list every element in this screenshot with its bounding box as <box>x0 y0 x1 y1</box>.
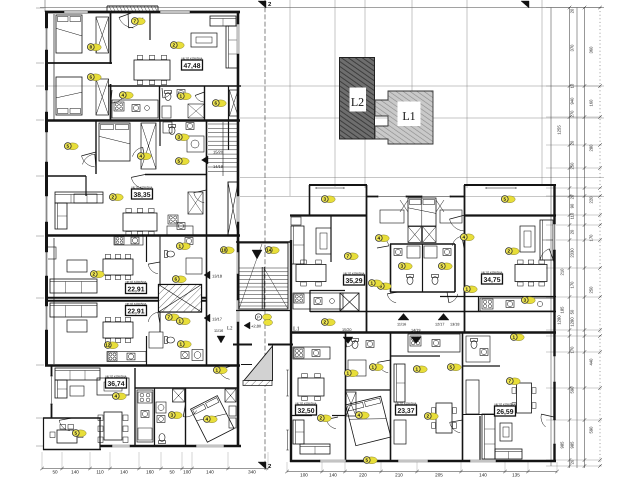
svg-text:14/19: 14/19 <box>213 164 224 169</box>
svg-text:4: 4 <box>358 413 361 418</box>
svg-text:1: 1 <box>216 368 219 373</box>
svg-text:20: 20 <box>570 229 575 234</box>
svg-text:4: 4 <box>378 236 381 241</box>
svg-text:590: 590 <box>589 426 594 434</box>
svg-text:170: 170 <box>570 281 575 289</box>
svg-text:1: 1 <box>372 365 375 370</box>
svg-text:5: 5 <box>178 159 181 164</box>
svg-text:14: 14 <box>266 248 272 253</box>
svg-text:10: 10 <box>570 83 575 88</box>
svg-text:360: 360 <box>589 46 594 54</box>
svg-text:280: 280 <box>589 144 594 152</box>
svg-text:5: 5 <box>67 144 70 149</box>
svg-text:2: 2 <box>173 43 176 48</box>
svg-text:1: 1 <box>513 335 516 340</box>
svg-text:12/17: 12/17 <box>435 323 445 327</box>
svg-text:250: 250 <box>589 286 594 294</box>
svg-text:50: 50 <box>169 469 175 474</box>
svg-text:22,91: 22,91 <box>127 286 144 293</box>
svg-text:7: 7 <box>347 254 350 259</box>
svg-text:2: 2 <box>324 320 327 325</box>
svg-text:3: 3 <box>524 298 527 303</box>
svg-text:32,50: 32,50 <box>297 408 314 415</box>
svg-text:4: 4 <box>140 154 143 159</box>
svg-text:5: 5 <box>441 264 444 269</box>
svg-text:440: 440 <box>589 358 594 366</box>
svg-text:11/16: 11/16 <box>397 323 406 327</box>
svg-text:5: 5 <box>75 431 78 436</box>
svg-text:7: 7 <box>168 315 171 320</box>
svg-text:6: 6 <box>175 277 178 282</box>
svg-text:6: 6 <box>215 101 218 106</box>
svg-text:38,35: 38,35 <box>133 192 150 199</box>
svg-text:3: 3 <box>178 135 181 140</box>
svg-text:170: 170 <box>589 234 594 242</box>
svg-text:6: 6 <box>90 75 93 80</box>
svg-text:160: 160 <box>146 469 154 474</box>
svg-text:4: 4 <box>206 417 209 422</box>
svg-text:1: 1 <box>180 342 183 347</box>
svg-text:1: 1 <box>347 371 350 376</box>
svg-text:100: 100 <box>183 469 191 474</box>
svg-text:3: 3 <box>171 413 174 418</box>
svg-text:1: 1 <box>371 281 374 286</box>
svg-text:5: 5 <box>366 458 369 463</box>
svg-text:90: 90 <box>570 203 575 208</box>
svg-text:160: 160 <box>589 99 594 107</box>
svg-text:210: 210 <box>395 472 403 477</box>
svg-text:50: 50 <box>52 469 58 474</box>
svg-text:940: 940 <box>570 97 575 105</box>
svg-text:26,59: 26,59 <box>496 409 513 416</box>
svg-text:3: 3 <box>324 197 327 202</box>
svg-text:2: 2 <box>320 416 323 421</box>
svg-text:20: 20 <box>570 8 575 13</box>
svg-text:1280: 1280 <box>570 317 575 327</box>
svg-text:L2: L2 <box>227 326 233 332</box>
svg-text:140: 140 <box>120 469 128 474</box>
svg-text:10: 10 <box>221 248 227 253</box>
svg-text:1: 1 <box>179 319 182 324</box>
svg-text:8: 8 <box>90 45 93 50</box>
svg-text:1: 1 <box>179 244 182 249</box>
svg-text:4: 4 <box>115 394 118 399</box>
svg-text:2: 2 <box>93 272 96 277</box>
svg-text:13/17: 13/17 <box>212 317 223 322</box>
svg-text:35,29: 35,29 <box>345 278 362 285</box>
svg-text:1255: 1255 <box>557 125 562 135</box>
svg-text:36,74: 36,74 <box>107 381 124 388</box>
svg-text:L1: L1 <box>402 109 415 123</box>
svg-text:140: 140 <box>479 472 487 477</box>
svg-text:13/18: 13/18 <box>450 323 460 327</box>
svg-text:4: 4 <box>463 235 466 240</box>
svg-text:20: 20 <box>570 194 575 199</box>
svg-text:50: 50 <box>570 309 575 314</box>
svg-text:14/19: 14/19 <box>411 329 421 333</box>
svg-text:210: 210 <box>560 268 565 276</box>
svg-text:+2,80: +2,80 <box>251 324 262 329</box>
svg-text:250: 250 <box>570 162 575 170</box>
svg-text:20: 20 <box>570 140 575 145</box>
svg-text:20: 20 <box>570 459 575 464</box>
svg-text:340: 340 <box>248 469 256 474</box>
svg-text:3: 3 <box>401 264 404 269</box>
svg-text:2: 2 <box>427 414 430 419</box>
svg-text:5: 5 <box>450 365 453 370</box>
svg-text:2330: 2330 <box>570 248 575 258</box>
svg-text:12: 12 <box>105 343 111 348</box>
svg-text:1: 1 <box>466 287 469 292</box>
svg-text:185: 185 <box>560 306 565 314</box>
svg-text:1: 1 <box>180 94 183 99</box>
svg-text:7: 7 <box>134 19 137 24</box>
svg-text:2: 2 <box>112 195 115 200</box>
svg-text:1280: 1280 <box>557 315 562 325</box>
svg-text:170: 170 <box>570 346 575 354</box>
svg-text:L2: L2 <box>351 95 364 109</box>
svg-text:220: 220 <box>589 196 594 204</box>
svg-text:5: 5 <box>504 197 507 202</box>
svg-text:47,48: 47,48 <box>183 63 200 70</box>
svg-text:1: 1 <box>416 367 419 372</box>
svg-text:4: 4 <box>122 93 125 98</box>
svg-text:140: 140 <box>71 469 79 474</box>
svg-text:13/18: 13/18 <box>212 274 223 279</box>
svg-text:985: 985 <box>560 441 565 449</box>
svg-text:7: 7 <box>509 379 512 384</box>
svg-text:2: 2 <box>508 249 511 254</box>
svg-text:370: 370 <box>570 44 575 52</box>
svg-text:P: P <box>257 315 260 320</box>
svg-text:110: 110 <box>96 469 104 474</box>
svg-text:590: 590 <box>570 386 575 394</box>
svg-text:220: 220 <box>359 472 367 477</box>
svg-text:135: 135 <box>512 472 520 477</box>
svg-text:270: 270 <box>570 110 575 118</box>
svg-text:11/16: 11/16 <box>214 329 223 333</box>
svg-text:34,75: 34,75 <box>483 277 500 284</box>
svg-text:15/20: 15/20 <box>213 150 224 155</box>
svg-text:100: 100 <box>300 472 308 477</box>
svg-text:15/20: 15/20 <box>342 328 352 332</box>
svg-text:205: 205 <box>435 472 443 477</box>
svg-text:140: 140 <box>329 472 337 477</box>
svg-text:22,91: 22,91 <box>127 308 144 315</box>
svg-text:23,37: 23,37 <box>397 408 414 415</box>
svg-text:110: 110 <box>570 212 575 219</box>
svg-text:985: 985 <box>570 441 575 449</box>
svg-text:140: 140 <box>206 469 214 474</box>
